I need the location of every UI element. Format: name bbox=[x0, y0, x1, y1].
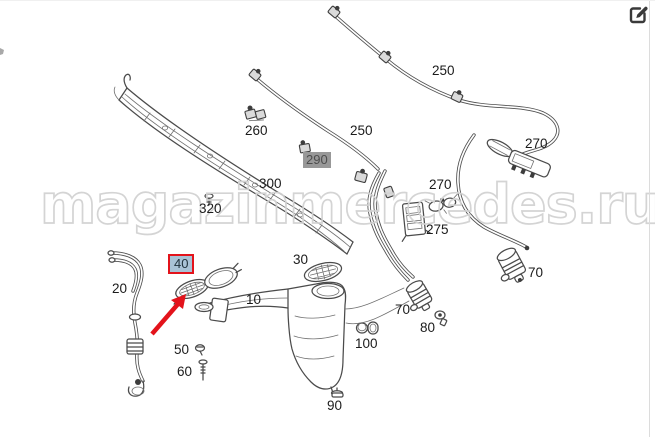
part-label-30[interactable]: 30 bbox=[293, 253, 308, 267]
part-label-60[interactable]: 60 bbox=[177, 365, 192, 379]
part-label-290[interactable]: 290 bbox=[303, 152, 331, 168]
part-label-260[interactable]: 260 bbox=[245, 124, 268, 138]
part-label-300[interactable]: 300 bbox=[259, 177, 282, 191]
part-label-70-left[interactable]: 70 bbox=[395, 303, 410, 317]
part-label-70-right[interactable]: 70 bbox=[528, 266, 543, 280]
part-label-40[interactable]: 40 bbox=[168, 254, 194, 274]
part-label-320[interactable]: 320 bbox=[199, 202, 222, 216]
part-label-80[interactable]: 80 bbox=[420, 321, 435, 335]
labels-layer: 2502502602903003202702702752030104050607… bbox=[0, 1, 655, 437]
part-label-250-upper[interactable]: 250 bbox=[432, 64, 455, 78]
part-label-50[interactable]: 50 bbox=[174, 343, 189, 357]
part-label-250-lower[interactable]: 250 bbox=[350, 124, 373, 138]
part-label-10[interactable]: 10 bbox=[246, 293, 261, 307]
right-edge-divider bbox=[649, 1, 650, 437]
edit-pencil-square-icon bbox=[628, 4, 650, 26]
part-label-275[interactable]: 275 bbox=[426, 223, 449, 237]
part-label-270-right[interactable]: 270 bbox=[525, 137, 548, 151]
part-label-100[interactable]: 100 bbox=[355, 337, 378, 351]
part-label-90[interactable]: 90 bbox=[327, 399, 342, 413]
parts-diagram-page: magazinmercedes.ru 250250260290300320270… bbox=[0, 0, 655, 437]
part-label-270-left[interactable]: 270 bbox=[429, 178, 452, 192]
edit-button[interactable] bbox=[627, 4, 651, 28]
part-label-20[interactable]: 20 bbox=[112, 282, 127, 296]
